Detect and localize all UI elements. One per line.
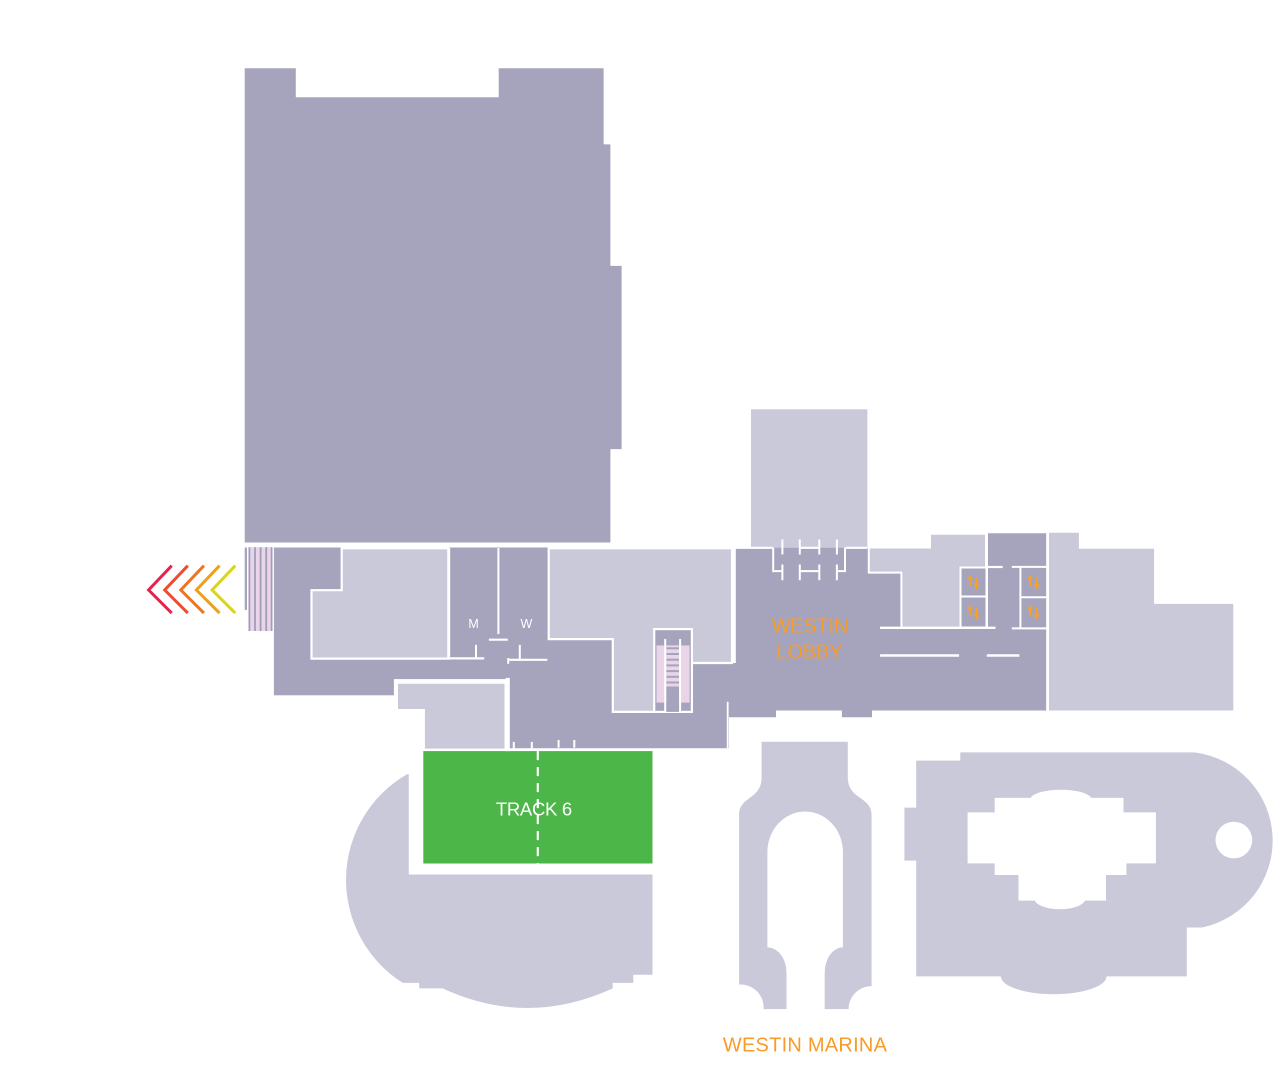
svg-text:WESTIN: WESTIN [772, 616, 849, 638]
svg-text:LOBBY: LOBBY [777, 641, 843, 663]
svg-text:M: M [468, 617, 478, 631]
svg-text:WESTIN MARINA: WESTIN MARINA [723, 1035, 888, 1057]
svg-text:W: W [520, 617, 532, 631]
svg-text:TRACK 6: TRACK 6 [496, 798, 572, 819]
